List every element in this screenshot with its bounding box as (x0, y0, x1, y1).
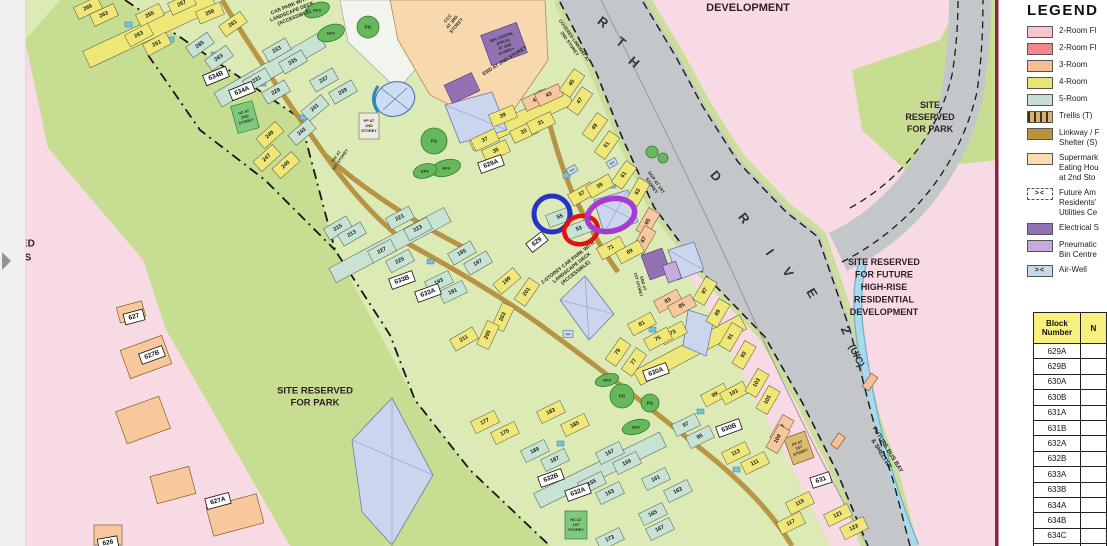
value-cell (1080, 497, 1106, 512)
table-row: 631B (1034, 420, 1107, 435)
table-row: 630B (1034, 390, 1107, 405)
legend-swatch-bracket: >< (1027, 188, 1053, 200)
value-cell (1080, 467, 1106, 482)
value-cell (1080, 451, 1106, 466)
block-number-cell: 633B (1034, 482, 1081, 497)
legend-item: Trellis (T) (1027, 111, 1107, 123)
legend-label: Future Am Residents' Utilities Ce (1059, 188, 1097, 218)
legend-item: 2-Room Fl (1027, 26, 1107, 38)
svg-text:EFS: EFS (421, 169, 429, 174)
svg-text:AFS: AFS (313, 8, 321, 13)
legend-swatch-swatch (1027, 128, 1053, 140)
legend-item: ><Air-Well (1027, 265, 1107, 277)
block-number-cell: 634C (1034, 528, 1081, 543)
facility-label: AFS (442, 166, 450, 171)
legend-swatch-trellis (1027, 111, 1053, 123)
table-row: 634B (1034, 513, 1107, 528)
legend-item: 2-Room Fl (1027, 43, 1107, 55)
value-cell (1080, 436, 1106, 451)
svg-text:PG: PG (431, 139, 438, 144)
table-row: 629A (1034, 344, 1107, 359)
facility-label: PG (365, 25, 372, 30)
legend-item: 5-Room (1027, 94, 1107, 106)
legend-item: Linkway / F Shelter (S) (1027, 128, 1107, 148)
legend-label: Linkway / F Shelter (S) (1059, 128, 1099, 148)
estate-map[interactable]: 2572652632552532512592612652632332352312… (0, 0, 1107, 546)
value-cell (1080, 359, 1106, 374)
block-number-cell: 631A (1034, 405, 1081, 420)
legend-label: 2-Room Fl (1059, 26, 1096, 36)
page-margin-strip (0, 0, 26, 546)
block-number-cell: 634A (1034, 497, 1081, 512)
legend-swatch-swatch (1027, 43, 1053, 55)
legend-item: ><Future Am Residents' Utilities Ce (1027, 188, 1107, 218)
value-cell (1080, 513, 1106, 528)
legend-swatch-swatch (1027, 94, 1053, 106)
facility-label: PG (619, 394, 626, 399)
legend-item: Supermark Eating Hou at 2nd Sto (1027, 153, 1107, 183)
svg-text:EFS: EFS (327, 31, 335, 36)
svg-text:EFS: EFS (632, 425, 640, 430)
pan-right-arrow-icon[interactable] (2, 252, 11, 270)
site-label: DEVELOPMENT (706, 2, 790, 14)
facility-label: EFS (327, 31, 335, 36)
svg-text:626: 626 (102, 539, 114, 546)
table-row: 634A (1034, 497, 1107, 512)
block-number-cell: 633A (1034, 467, 1081, 482)
legend-label: 4-Room (1059, 77, 1087, 87)
table-row: 632A (1034, 436, 1107, 451)
legend-label: 5-Room (1059, 94, 1087, 104)
table-header-n: N (1080, 313, 1106, 344)
table-row: 633A (1034, 467, 1107, 482)
legend-title: LEGEND (1027, 2, 1107, 19)
svg-text:PG: PG (365, 25, 372, 30)
legend-label: Trellis (T) (1059, 111, 1092, 121)
value-cell (1080, 420, 1106, 435)
block-number-table: Block Number N 629A629B630A630B631A631B6… (1033, 312, 1107, 546)
block-number-cell: 629A (1034, 344, 1081, 359)
value-cell (1080, 482, 1106, 497)
legend-swatch-swatch (1027, 240, 1053, 252)
value-cell (1080, 390, 1106, 405)
table-header-block-number: Block Number (1034, 313, 1081, 344)
legend-label: Air-Well (1059, 265, 1087, 275)
legend-item: Pneumatic Bin Centre (1027, 240, 1107, 260)
table-row: 633B (1034, 482, 1107, 497)
block-number-cell: 632A (1034, 436, 1081, 451)
plan-boundary-line (995, 0, 999, 546)
legend-swatch-swatch (1027, 223, 1053, 235)
table-row: 630A (1034, 374, 1107, 389)
facility-label: EFS (632, 425, 640, 430)
svg-text:><: >< (566, 332, 571, 337)
value-cell (1080, 344, 1106, 359)
legend-swatch-swatch (1027, 153, 1053, 165)
legend-items: 2-Room Fl2-Room Fl3-Room4-Room5-RoomTrel… (1027, 26, 1107, 277)
block-number-cell: 630B (1034, 390, 1081, 405)
table-row: 631A (1034, 405, 1107, 420)
value-cell (1080, 528, 1106, 543)
facility-label: PG (647, 401, 654, 406)
block-number-cell: 630A (1034, 374, 1081, 389)
site-plan-viewer: 2572652632552532512592612652632332352312… (0, 0, 1107, 546)
block-number-cell: 629B (1034, 359, 1081, 374)
svg-text:PG: PG (647, 401, 654, 406)
svg-text:PG: PG (619, 394, 626, 399)
legend-label: Pneumatic Bin Centre (1059, 240, 1097, 260)
table-row: 629B (1034, 359, 1107, 374)
block-number-cell: 632B (1034, 451, 1081, 466)
facility-label: >< (566, 332, 571, 337)
legend-item: 4-Room (1027, 77, 1107, 89)
facility-label: EFS (421, 169, 429, 174)
legend-swatch-swatch (1027, 77, 1053, 89)
svg-text:DEVELOPMENT: DEVELOPMENT (706, 2, 790, 14)
legend-item: Electrical S (1027, 223, 1107, 235)
block-number-cell: 631B (1034, 420, 1081, 435)
block-number-cell: 634B (1034, 513, 1081, 528)
facility-label: AFS (603, 378, 611, 383)
facility-label: AFS (313, 8, 321, 13)
legend-label: 2-Room Fl (1059, 43, 1096, 53)
legend-swatch-swatch (1027, 26, 1053, 38)
value-cell (1080, 374, 1106, 389)
legend-label: Supermark Eating Hou at 2nd Sto (1059, 153, 1099, 183)
legend-swatch-bracket: >< (1027, 265, 1053, 277)
svg-text:AFS: AFS (603, 378, 611, 383)
legend-label: 3-Room (1059, 60, 1087, 70)
table-row: 632B (1034, 451, 1107, 466)
facility-label: PG (431, 139, 438, 144)
svg-text:AFS: AFS (442, 166, 450, 171)
legend-label: Electrical S (1059, 223, 1099, 233)
legend-item: 3-Room (1027, 60, 1107, 72)
legend-swatch-swatch (1027, 60, 1053, 72)
value-cell (1080, 405, 1106, 420)
table-row: 634C (1034, 528, 1107, 543)
